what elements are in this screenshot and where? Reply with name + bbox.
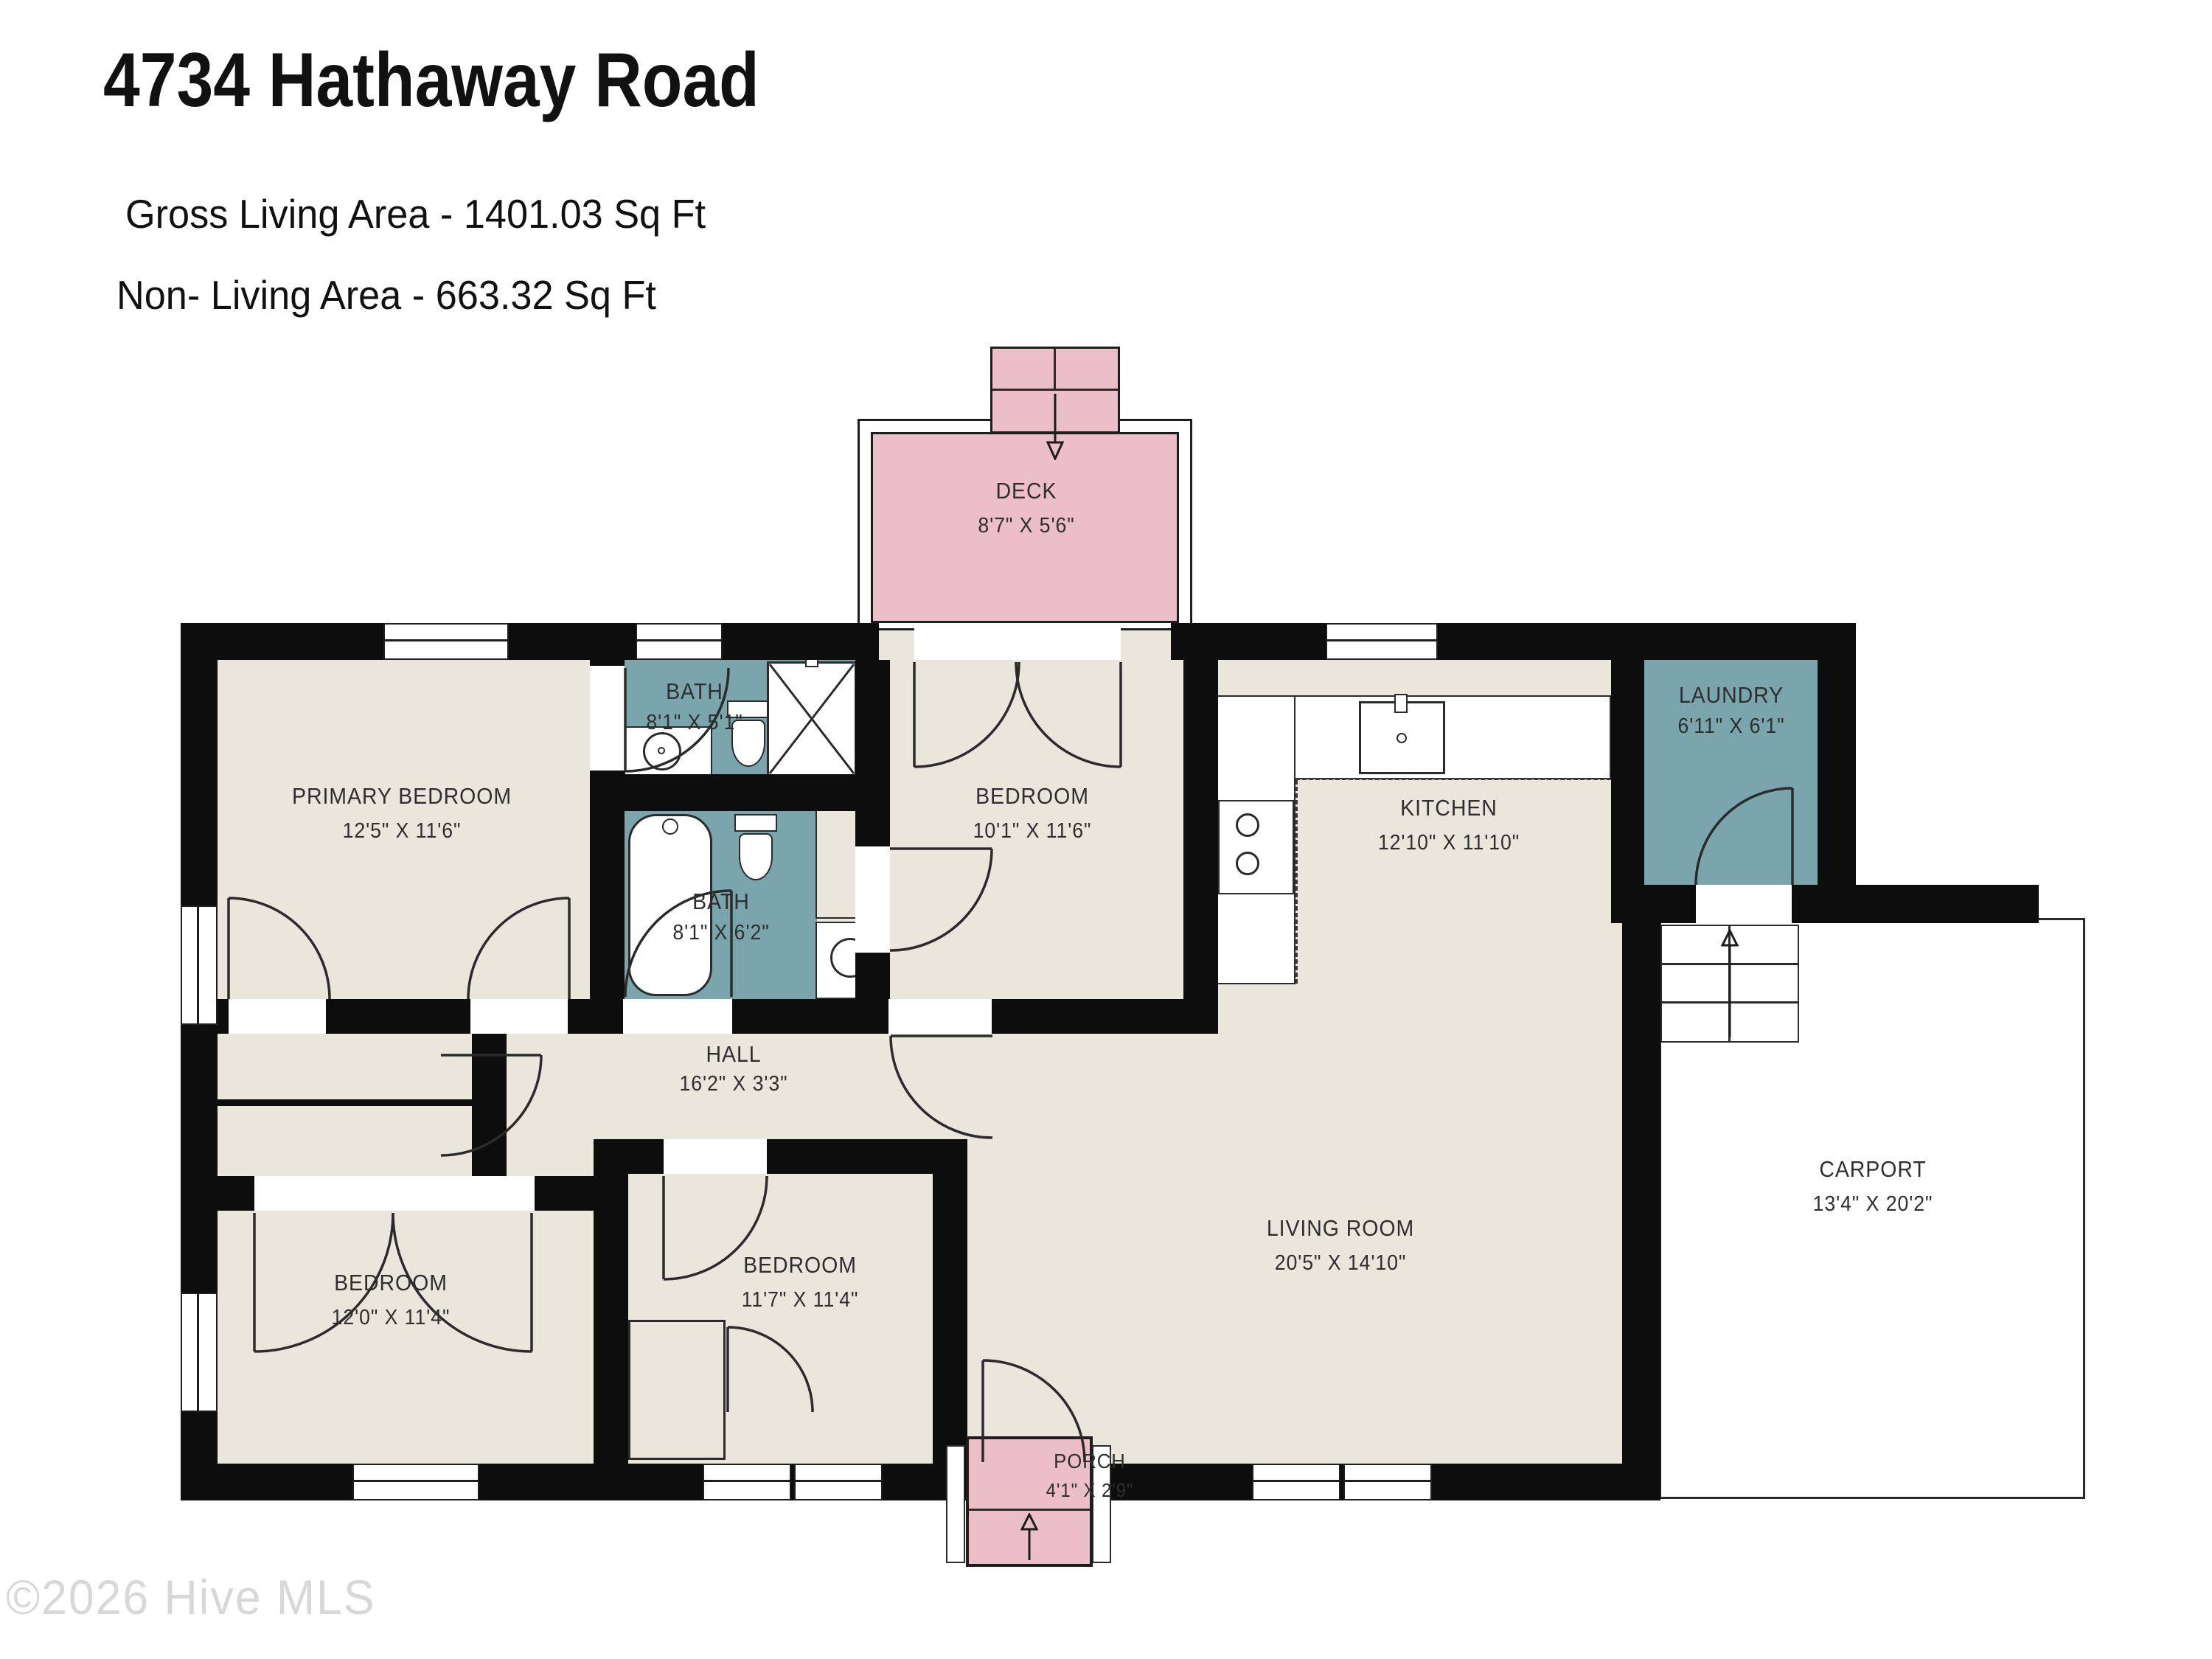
window xyxy=(181,905,218,1025)
deck-stairs-rail xyxy=(1054,349,1056,389)
wall-bath-divider xyxy=(590,774,890,811)
hall-end-door-gap xyxy=(888,999,992,1034)
room-label-bedroom-s: BEDROOM11'7" X 11'4" xyxy=(742,1252,859,1312)
non-living-area: Non- Living Area - 663.32 Sq Ft xyxy=(116,271,656,319)
window xyxy=(1326,623,1438,660)
wall-carport-top xyxy=(1611,885,2039,923)
watermark: ©2026 Hive MLS xyxy=(6,1569,375,1625)
wall-outer-top-right xyxy=(1171,623,1856,660)
deck-down-arrow-icon xyxy=(1046,394,1064,460)
porch-up-arrow-icon xyxy=(1020,1513,1038,1560)
hall-closet-door-swing xyxy=(441,1053,543,1158)
shower-x-icon xyxy=(767,661,857,776)
wall-bedroom-kitchen xyxy=(1183,660,1218,1032)
room-label-bedroom-ne: BEDROOM10'1" X 11'6" xyxy=(973,783,1092,844)
bedroom-s-closet-door-swing xyxy=(726,1327,815,1414)
wall-laundry-right xyxy=(1818,660,1856,922)
bedroom-ne-door-gap xyxy=(855,846,890,953)
front-door-swing xyxy=(981,1360,1087,1464)
room-label-primary-bedroom: PRIMARY BEDROOM12'5" X 11'6" xyxy=(292,783,512,844)
laundry-door-gap xyxy=(1696,885,1792,923)
window xyxy=(352,1464,479,1500)
window xyxy=(181,1293,218,1412)
bath-top-door-gap xyxy=(590,666,625,771)
wall-bedrooms-divider xyxy=(594,1139,628,1465)
stove xyxy=(1218,800,1294,894)
wall-closet-divider xyxy=(218,1099,472,1106)
tub-faucet-icon xyxy=(662,818,678,835)
room-label-deck: DECK8'7" X 5'6" xyxy=(978,478,1074,538)
toilet-tank-icon xyxy=(734,814,777,832)
porch-rail-left xyxy=(946,1445,965,1563)
upper-cabinet-dashed-line xyxy=(1295,778,1611,780)
kitchen-faucet-icon xyxy=(1394,694,1408,713)
wall-laundry-left xyxy=(1611,660,1644,922)
hall-end-door-swing xyxy=(888,1034,992,1140)
window xyxy=(703,1464,791,1500)
stove-burner-icon xyxy=(1236,813,1259,837)
wall-outer-right xyxy=(1622,923,1660,1500)
toilet-bowl-icon xyxy=(739,833,773,880)
room-label-hall: HALL16'2" X 3'3" xyxy=(680,1041,788,1096)
deck-door-swing-left xyxy=(912,660,1021,767)
room-label-bath-top: BATH8'1" X 5'1" xyxy=(646,678,742,735)
primary-door-gap xyxy=(229,999,326,1034)
bedroom-s-closet xyxy=(628,1320,726,1460)
window xyxy=(383,623,509,660)
deck-door-swing-right xyxy=(1014,660,1123,767)
wall-bedroom-s-top xyxy=(594,1139,967,1174)
primary-door-swing xyxy=(226,898,332,1001)
bedroom-ne-door-swing xyxy=(890,846,994,953)
porch-step-line xyxy=(969,1509,1090,1511)
primary-door-swing-2 xyxy=(466,898,571,1001)
stairs-up-arrow-icon xyxy=(1721,929,1739,1037)
page-title: 4734 Hathaway Road xyxy=(103,37,759,125)
room-label-living-room: LIVING ROOM20'5" X 14'10" xyxy=(1267,1215,1414,1276)
window xyxy=(1343,1464,1432,1500)
upper-cabinet-dashed-line-v xyxy=(1295,780,1298,984)
deck-stairs-step xyxy=(992,389,1119,391)
window xyxy=(1252,1464,1340,1500)
window xyxy=(794,1464,883,1500)
kitchen-drain-icon xyxy=(1397,733,1407,743)
gross-living-area: Gross Living Area - 1401.03 Sq Ft xyxy=(125,190,706,237)
bath-mid-door-gap xyxy=(623,999,732,1034)
wall-outer-top-left xyxy=(181,623,879,660)
bedroom-s-door-gap xyxy=(664,1139,767,1174)
stove-burner-icon xyxy=(1236,852,1259,875)
room-label-carport: CARPORT13'4" X 20'2" xyxy=(1813,1156,1933,1217)
deck-door-gap xyxy=(914,623,1121,660)
room-label-bath-mid: BATH8'1" X 6'2" xyxy=(672,888,769,945)
laundry-door-swing xyxy=(1694,788,1795,887)
closet-doors-gap xyxy=(254,1176,535,1211)
primary-door-gap-2 xyxy=(470,999,568,1034)
floorplan-page: 4734 Hathaway Road Gross Living Area - 1… xyxy=(0,0,2212,1659)
wall-living-left xyxy=(933,1139,967,1465)
room-label-bedroom-sw: BEDROOM12'0" X 11'4" xyxy=(332,1270,451,1330)
room-label-laundry: LAUNDRY6'11" X 6'1" xyxy=(1677,682,1784,739)
window xyxy=(636,623,723,660)
room-label-kitchen: KITCHEN12'10" X 11'10" xyxy=(1378,795,1520,855)
